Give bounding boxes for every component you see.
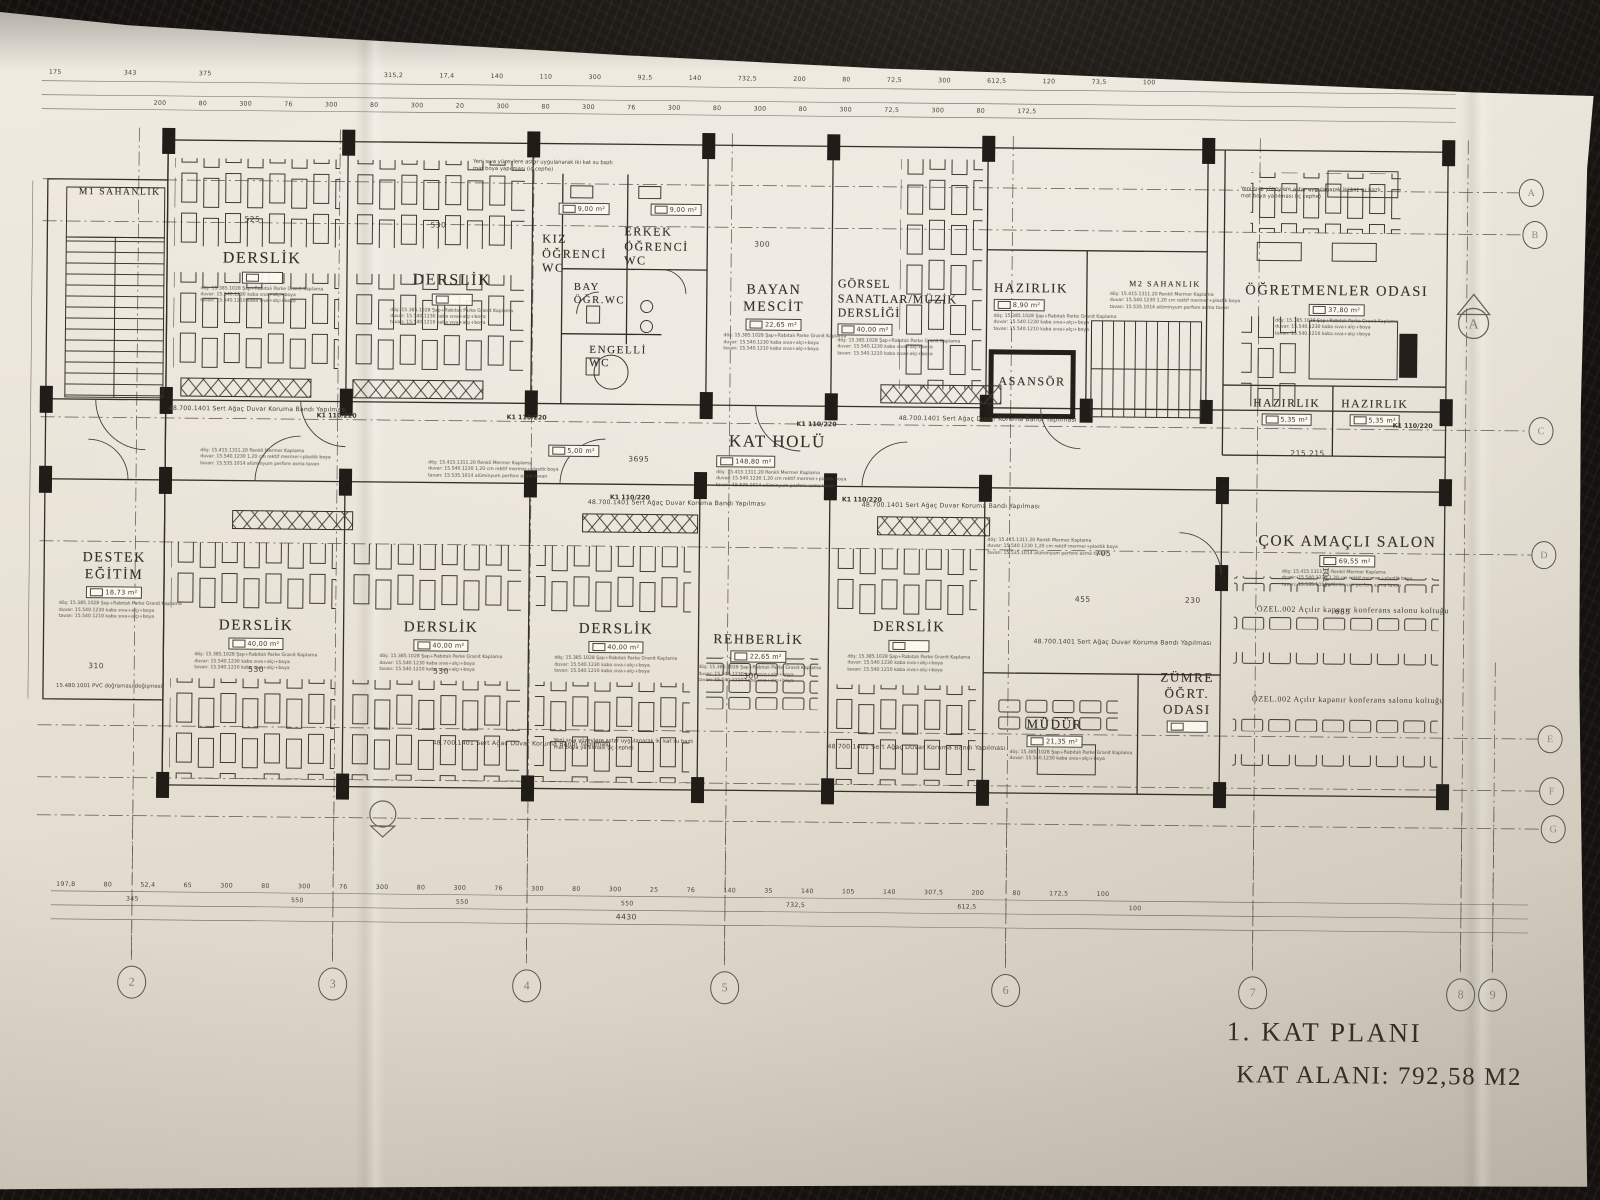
room-label-engelli-wc: ENGELLİ WC — [589, 344, 667, 372]
spec-note: döş: 15.385.1028 Şap+Rabıtalı Parke Gran… — [554, 656, 677, 676]
area-chip: 148,80 m² — [716, 455, 776, 468]
pvc-note: 15.480.1001 PVC doğraması değişmesi — [56, 683, 166, 690]
plan-linework — [0, 8, 1600, 1193]
grid-bubble-row-d: D — [1531, 541, 1556, 569]
spec-note: döş: 15.415.1311.20 Renkli Mermer Kaplam… — [200, 448, 331, 469]
spec-note: döş: 15.385.1028 Şap+Rabıtalı Parke Gran… — [59, 601, 182, 621]
floor-plan-drawing: M1 SAHANLIK DERSLİK döş: 15.385.1028 Şap… — [0, 8, 1600, 1193]
area-chip: 9,00 m² — [559, 203, 610, 215]
area-chip: 40,00 m² — [588, 641, 643, 654]
section-marker: A — [1453, 290, 1487, 336]
room-label-m1-sahanlik: M1 SAHANLIK — [65, 187, 175, 200]
dimension-label: 3695 — [628, 454, 649, 463]
dimension-label: 4430 — [616, 912, 637, 921]
grid-bubble-col-3: 3 — [318, 967, 347, 1000]
column-tag: K1 110/220 — [797, 421, 837, 428]
stair-m2 — [1091, 321, 1202, 418]
spec-note: döş: 15.385.1028 Şap+Rabıtalı Parke Gran… — [200, 286, 323, 306]
dimension-label: 310 — [88, 661, 104, 670]
column-tag: K1 110/220 — [1393, 423, 1433, 430]
grid-bubble-col-6: 6 — [991, 974, 1020, 1007]
dimension-label: 530 — [430, 220, 446, 229]
room-label-m2-sahanlik: M2 SAHANLIK döş: 15.415.1311.20 Renkli M… — [1110, 279, 1220, 312]
room-label-cok-amacli-salon: ÇOK AMAÇLI SALON 69,55 m² döş: 15.415.13… — [1247, 532, 1448, 590]
room-label-hazirlik-2: HAZIRLIK 5,35 m² — [1249, 396, 1325, 426]
area-chip — [241, 271, 282, 283]
dimension-label: 300 — [754, 240, 770, 249]
photo-of-floor-plan: { "title_block": { "line1": "1. KAT PLAN… — [0, 0, 1600, 1200]
grid-bubble-col-2: 2 — [117, 965, 146, 998]
grid-bubble-col-8: 8 — [1446, 978, 1475, 1011]
room-label-asansor: ASANSÖR — [996, 374, 1068, 389]
room-label-kat-holu: KAT HOLÜ 148,80 m² döş: 15.415.1311.20 R… — [712, 431, 843, 490]
paint-note: Yeni sıva yüzeylere astar uygulanarak ik… — [553, 738, 703, 754]
area-chip: 8,90 m² — [994, 299, 1045, 311]
room-label-kiz-ogrenci-wc: KIZ ÖĞRENCİ WC — [542, 232, 622, 277]
area-chip: 21,35 m² — [1027, 735, 1082, 748]
blueprint-paper-sheet: M1 SAHANLIK DERSLİK döş: 15.385.1028 Şap… — [0, 0, 1600, 1200]
plan-title: 1. KAT PLANI — [1227, 1016, 1523, 1050]
area-chip: 69,55 m² — [1320, 555, 1375, 568]
dimension-label: 1015 — [1321, 567, 1330, 588]
grid-bubble-row-g: G — [1541, 815, 1566, 843]
area-chip: 40,00 m² — [413, 640, 468, 653]
area-chip — [431, 293, 472, 305]
grid-bubble-col-9: 9 — [1478, 979, 1507, 1012]
area-chip: 18,73 m² — [86, 586, 141, 599]
svg-text:A: A — [1468, 317, 1479, 332]
room-label-gorsel-sanatlar-muzik: GÖRSEL SANATLAR/MÜZİK DERSLİĞİ 40,00 m² … — [837, 276, 958, 358]
room-label-hazirlik-1: HAZIRLIK 8,90 m² döş: 15.385.1028 Şap+Ra… — [993, 280, 1090, 334]
column-tag: K1 110/220 — [842, 496, 882, 503]
area-chip — [1166, 720, 1207, 732]
area-chip: 5,00 m² — [548, 445, 599, 457]
area-chip: 40,00 m² — [837, 323, 892, 336]
room-label-bay-ogr-wc: BAY ÖĞR.WC — [574, 282, 644, 308]
dimension-label: 530 — [433, 666, 449, 675]
paint-note: Yeni sıva yüzeylere astar uygulanarak ik… — [473, 159, 623, 175]
room-label-derslik-6: DERSLİK döş: 15.385.1028 Şap+Rabıtalı Pa… — [846, 618, 972, 674]
dimension-label: 230 — [1185, 596, 1201, 605]
section-marker — [365, 798, 399, 844]
area-chip: 37,80 m² — [1309, 304, 1364, 317]
spec-note: döş: 15.415.1311.20 Renkli Mermer Kaplam… — [1282, 570, 1413, 591]
area-chip — [888, 640, 929, 652]
room-label-mudur: MÜDÜR 21,35 m² döş: 15.385.1028 Şap+Rabı… — [1009, 716, 1099, 764]
spec-note: döş: 15.385.1028 Şap+Rabıtalı Parke Gran… — [698, 666, 821, 686]
conference-seat-note: ÖZEL.002 Açılır kapanır konferans salonu… — [1252, 694, 1444, 705]
plan-title-block: 1. KAT PLANI KAT ALANI: 792,58 M2 — [1226, 1016, 1522, 1092]
grid-bubble-col-7: 7 — [1238, 976, 1267, 1009]
room-label-ogretmenler-odasi: ÖĞRETMENLER ODASI 37,80 m² döş: 15.385.1… — [1241, 282, 1432, 339]
spec-note: döş: 15.415.1311.20 Renkli Mermer Kaplam… — [428, 460, 559, 481]
area-chip: 5,35 m² — [1261, 413, 1312, 425]
conference-seat-note: ÖZEL.002 Açılır kapanır konferans salonu… — [1257, 604, 1449, 615]
room-label-erkek-ogrenci-wc: ERKEK ÖĞRENCİ WC — [624, 224, 714, 269]
area-chip: 40,00 m² — [228, 638, 283, 651]
grid-bubble-row-a: A — [1519, 179, 1544, 207]
plan-area-label: KAT ALANI: 792,58 M2 — [1236, 1061, 1522, 1092]
column-tag: K1 110/220 — [317, 412, 357, 419]
grid-bubble-col-4: 4 — [512, 969, 541, 1002]
dimension-label: 215 215 — [1290, 449, 1325, 458]
dimension-label: 685 — [1335, 607, 1351, 616]
spec-note: döş: 15.415.1311.20 Renkli Mermer Kaplam… — [716, 470, 847, 491]
area-chip: 22,65 m² — [731, 651, 786, 664]
spec-note: döş: 15.385.1028 Şap+Rabıtalı Parke Gran… — [837, 338, 960, 358]
grid-bubble-row-e: E — [1537, 725, 1562, 753]
grid-bubble-row-c: C — [1528, 417, 1553, 445]
area-chip: 22,65 m² — [746, 319, 801, 332]
room-label-derslik-1: DERSLİK döş: 15.385.1028 Şap+Rabıtalı Pa… — [197, 248, 328, 306]
grid-bubble-row-b: B — [1522, 221, 1547, 249]
dimension-label: 525 — [244, 215, 260, 224]
spec-note: döş: 15.385.1028 Şap+Rabıtalı Parke Gran… — [723, 333, 846, 353]
room-label-zumre-ogrt-odasi: ZÜMRE ÖĞRT. ODASI — [1148, 669, 1227, 732]
dimension-label: 455 — [1075, 595, 1091, 604]
stair-m1 — [65, 187, 165, 398]
spec-note: döş: 15.385.1028 Şap+Rabıtalı Parke Gran… — [390, 308, 513, 328]
spec-note: döş: 15.385.1028 Şap+Rabıtalı Parke Gran… — [847, 654, 970, 674]
area-chip: 9,00 m² — [651, 204, 702, 216]
room-label-derslik-5: DERSLİK 40,00 m² döş: 15.385.1028 Şap+Ra… — [553, 620, 679, 677]
column-tag: K1 110/220 — [507, 414, 547, 421]
room-label-destek-egitim: DESTEK EĞİTİM 18,73 m² döş: 15.385.1028 … — [59, 549, 170, 621]
paint-note: Yeni sıva yüzeylere astar uygulanarak ik… — [1241, 186, 1391, 202]
spec-note: döş: 15.385.1028 Şap+Rabıtalı Parke Gran… — [1275, 318, 1398, 338]
room-label-derslik-2: DERSLİK döş: 15.385.1028 Şap+Rabıtalı Pa… — [386, 270, 517, 328]
spec-note: döş: 15.385.1028 Şap+Rabıtalı Parke Gran… — [993, 314, 1116, 334]
grid-bubble-col-5: 5 — [710, 971, 739, 1004]
spec-note: döş: 15.415.1311.20 Renkli Mermer Kaplam… — [1110, 292, 1241, 313]
dimension-label: 530 — [248, 665, 264, 674]
spec-note: döş: 15.385.1028 Şap+Rabıtalı Parke Gran… — [1009, 750, 1132, 764]
column-tag: K1 110/220 — [610, 494, 650, 501]
grid-bubble-row-f: F — [1539, 777, 1564, 805]
dimension-label: 705 — [1095, 549, 1111, 558]
room-label-bayan-mescit: BAYAN MESCİT 22,65 m² döş: 15.385.1028 Ş… — [723, 281, 824, 353]
dimension-label: 300 — [743, 671, 759, 680]
